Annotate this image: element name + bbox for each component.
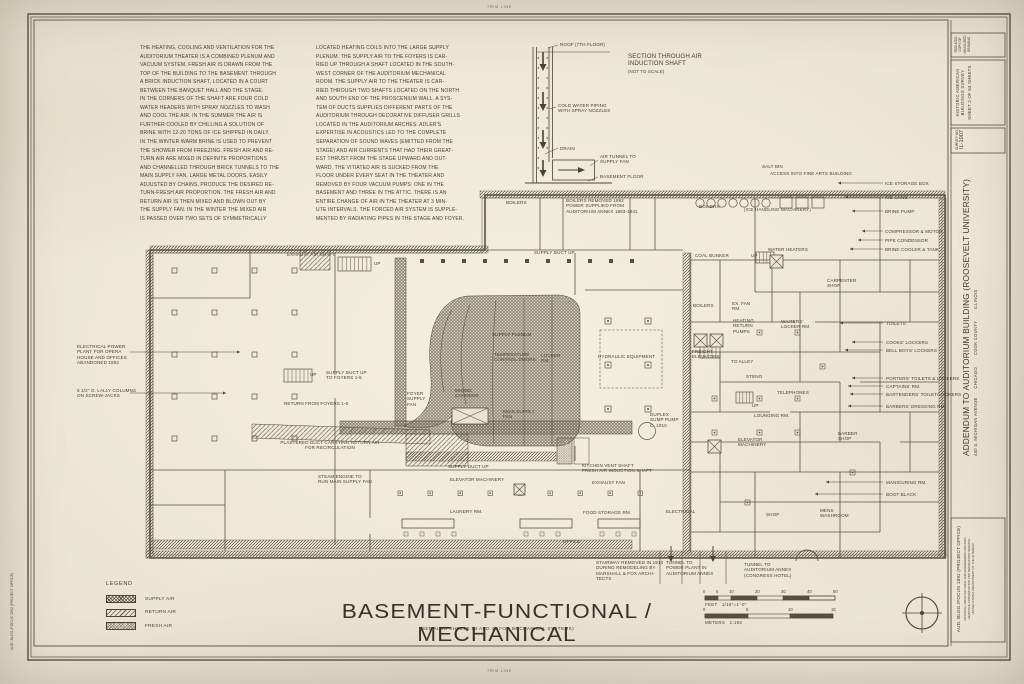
plan-label: EXHAUST AIR SHAFT — [287, 252, 335, 257]
supply-air-swatch — [106, 595, 136, 603]
plan-label: SALT BIN — [762, 164, 783, 169]
spray-nozzle-dots — [538, 57, 548, 168]
plan-label: SUPPLY DUCT UP — [448, 464, 489, 469]
fresh-air-swatch — [106, 622, 136, 630]
scale-tick: 0 — [703, 607, 705, 612]
plan-label: COLD WATER PIPING WITH SPRAY NOZZLES — [558, 103, 610, 114]
sheet-title: BASEMENT-FUNCTIONAL / MECHANICAL — [260, 601, 735, 647]
plan-label: UP — [752, 403, 759, 408]
plan-label: DUPLEX SUMP PUMP C. 1910 — [650, 412, 679, 428]
plan-label: MAIN SUPPLY FAN — [503, 409, 535, 420]
scale-tick: 30 — [781, 589, 786, 594]
scale-tick: 15 — [831, 607, 836, 612]
legend-item: RETURN AIR — [106, 609, 176, 617]
plan-label: BOILERS — [506, 200, 527, 205]
plan-label: WAITERS' LOCKER RM. — [781, 319, 811, 330]
plan-label: TELEPHONES — [777, 390, 809, 395]
plan-label: LOCKER RM. — [541, 353, 561, 364]
plan-label: BARBERS' DRESSING RM. — [886, 404, 946, 409]
notes-column-1: THE HEATING, COOLING AND VENTILATION FOR… — [140, 44, 312, 223]
plan-label: FOOD STORAGE RM. — [583, 510, 631, 515]
plan-label: EXHAUST FAN — [592, 480, 625, 485]
plan-label: COAL BUNKER — [695, 253, 729, 258]
trim-line-bottom: TRIM LINE — [487, 669, 512, 673]
plan-label: SUPPLY PLENUM — [492, 332, 531, 337]
plan-label: OFFICE — [563, 539, 580, 544]
credit-org: AUD. BLDG./FOCUS 1892 (PROJECT OFFICE) — [956, 520, 961, 638]
compass-icon — [902, 593, 942, 633]
scale-tick: 20 — [755, 589, 760, 594]
plan-label: DRAIN — [560, 146, 575, 151]
title-block-project: ADDENDUM TO AUDITORIUM BUILDING (ROOSEVE… — [962, 56, 1002, 456]
plan-label: BOILERS — [693, 303, 714, 308]
plan-label: SHOP — [766, 512, 779, 517]
plan-label: BRINE COOLER & TANK — [885, 247, 939, 252]
plan-label: 5 1/2" O. LALLY COLUMNS ON SCREW-JACKS — [77, 388, 136, 399]
sheet-subtitle: (SEE ALSO SHEETS 54 AND 47 FOR MECHANICA… — [287, 626, 707, 631]
credit-line-1: NATIONAL ARCHITECTURAL AND ENGINEERING R… — [963, 520, 967, 638]
plan-label: HYDRAULIC EQUIPMENT — [598, 354, 655, 359]
plan-label: CARPENTER SHOP — [827, 278, 856, 289]
plan-label: COOKS' LOCKERS — [886, 340, 928, 345]
left-margin-stamp: AUD. BLDG./FOCUS 1892 (PROJECT OFFICE) — [10, 550, 19, 650]
plan-label: EX. FAN RM. — [732, 301, 750, 312]
plan-label: AIR TUNNEL TO SUPPLY FAN — [600, 154, 636, 165]
plan-label: PLASTERED DUCT CARRYING RETURN AIR FOR R… — [280, 440, 379, 451]
plan-label: PIPE CONDENSOR — [885, 238, 928, 243]
plan-label: BOILERS REMOVED 1892 POWER SUPPLIED FROM… — [566, 198, 638, 214]
plan-label: BELL BOYS' LOCKERS — [886, 348, 937, 353]
plan-label: TOILETS — [886, 321, 906, 326]
scale-tick: 10 — [788, 607, 793, 612]
scale-tick: 50 — [833, 589, 838, 594]
legend-item: SUPPLY AIR — [106, 595, 176, 603]
plan-label: PORTERS' TOILETS & LOCKERS — [886, 376, 959, 381]
feet-scale-label: FEET 1/16"=1'-0" — [705, 602, 747, 607]
plan-label: ROOF (7TH FLOOR) — [560, 42, 605, 47]
plan-label: KITCHEN VENT SHAFT FRESH AIR INDUCTION S… — [582, 463, 652, 474]
plan-label: UP — [374, 261, 381, 266]
plan-label: STEAM ENGINE TO RUN MAIN SUPPLY FAN — [318, 474, 372, 485]
plan-label: ELEVATOR MACHINERY — [450, 477, 504, 482]
plan-label: TUNNEL TO AUDITORIUM ANNEX (CONGRESS HOT… — [744, 562, 792, 578]
plan-label: BOILERS — [699, 204, 720, 209]
return-air-swatch — [106, 609, 136, 617]
plan-label: STAIRWAY REMOVED IN 1910 DURING REMODELI… — [596, 560, 663, 582]
supply-plenum-shape — [404, 295, 580, 446]
notes-column-2: LOCATED HEATING COILS INTO THE LARGE SUP… — [316, 44, 488, 223]
plan-label: ACCESS INTO FINE ARTS BUILDING — [770, 171, 852, 176]
title-block-corner-note: REDUCED COPY OF MEASURED DRAWING — [954, 34, 1004, 55]
plan-label: MANICURING RM. — [886, 480, 927, 485]
scale-tick: 5 — [746, 607, 748, 612]
legend: LEGEND SUPPLY AIRRETURN AIRFRESH AIR — [106, 581, 176, 636]
scale-tick: 40 — [807, 589, 812, 594]
scale-tick: 10 — [729, 589, 734, 594]
title-block-credit: AUD. BLDG./FOCUS 1892 (PROJECT OFFICE) N… — [956, 520, 1006, 638]
plan-label: SUPPLY DUCT UP — [534, 250, 575, 255]
plan-label: LOUNGING RM. — [754, 413, 789, 418]
legend-item-label: RETURN AIR — [145, 610, 176, 615]
air-induction-shaft-section — [525, 45, 612, 183]
plan-label: FOYER SUPPLY FAN — [407, 391, 425, 407]
plan-label: TO ALLEY — [731, 359, 753, 364]
scale-tick: 5 — [716, 589, 718, 594]
plan-label: BRINE PUMP — [885, 209, 915, 214]
plan-label: STENO — [746, 374, 762, 379]
meters-scale-label: METERS 1:192 — [705, 620, 742, 625]
legend-item: FRESH AIR — [106, 622, 176, 630]
plan-label: SECTION THROUGH AIR INDUCTION SHAFT — [628, 53, 702, 68]
plan-label: LAUNDRY RM. — [450, 509, 483, 514]
legend-item-label: FRESH AIR — [145, 624, 172, 629]
plan-label: (ICE HANDLING MACHINERY) — [744, 207, 811, 212]
plan-label: MIXING CHAMBER — [455, 388, 479, 399]
plan-label: RETURN FROM FOYERS 1-6 — [284, 401, 348, 406]
plan-label: TEMPERATURE CONTROL DOORS — [494, 352, 536, 363]
plan-label: MENS WASHROOM — [820, 508, 849, 519]
plan-label: SUPPLY DUCT UP TO FOYERS 1-6 — [326, 370, 367, 381]
plan-label: HEATING RETURN PUMPS — [733, 318, 754, 334]
plan-label: UP — [310, 372, 317, 377]
plan-label: CAPTAINS' RM. — [886, 384, 921, 389]
plan-label: WATER HEATERS — [768, 247, 808, 252]
plan-label: FREIGHT ELEVATORS — [692, 349, 720, 360]
plan-label: ELEVATOR MACHINERY — [738, 437, 766, 448]
plan-label: UP — [751, 253, 758, 258]
credit-line-3: UNITED STATES DEPARTMENT OF THE INTERIOR — [971, 520, 975, 638]
plan-label: ICE STORAGE BOX — [885, 181, 929, 186]
plan-label: ICE CANS — [885, 195, 908, 200]
scale-tick: 0 — [703, 589, 705, 594]
legend-item-label: SUPPLY AIR — [145, 597, 175, 602]
plan-label: TUNNEL TO POWER PLANT IN AUDITORIUM ANNE… — [666, 560, 713, 576]
plan-label: BARBER SHOP — [838, 431, 858, 442]
plan-label: (NOT TO SCALE) — [628, 69, 664, 74]
trim-line-top: TRIM LINE — [487, 5, 512, 9]
project-address: 430 S. MICHIGAN AVENUE CHICAGO COOK COUN… — [973, 56, 978, 456]
project-title: ADDENDUM TO AUDITORIUM BUILDING (ROOSEVE… — [962, 56, 971, 456]
plan-label: BARTENDERS' TOILET/LOCKERS — [886, 392, 961, 397]
plan-label: ELECTRICAL — [666, 509, 695, 514]
legend-title: LEGEND — [106, 581, 176, 587]
plan-label: COMPRESSOR & MOTOR — [885, 229, 943, 234]
plan-label: ELECTRICAL POWER PLANT FOR OPERA HOUSE A… — [77, 344, 127, 366]
plan-label: BASEMENT FLOOR — [600, 174, 644, 179]
plan-label: BOOT BLACK — [886, 492, 916, 497]
